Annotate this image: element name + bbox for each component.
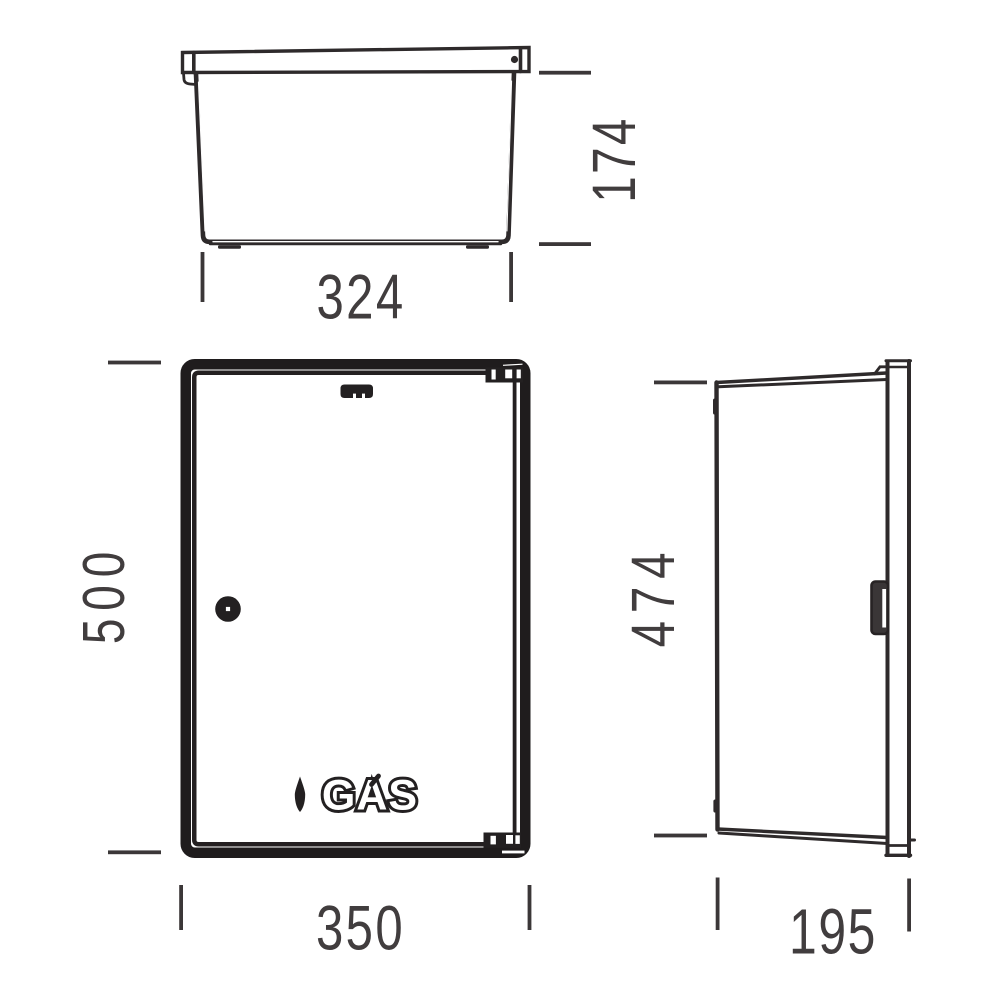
svg-text:GAS: GAS (322, 772, 418, 820)
svg-text:195: 195 (789, 897, 877, 968)
svg-text:474: 474 (618, 545, 687, 648)
svg-text:350: 350 (316, 893, 405, 963)
svg-text:500: 500 (72, 544, 138, 644)
svg-text:324: 324 (316, 262, 405, 332)
svg-text:174: 174 (579, 116, 648, 202)
